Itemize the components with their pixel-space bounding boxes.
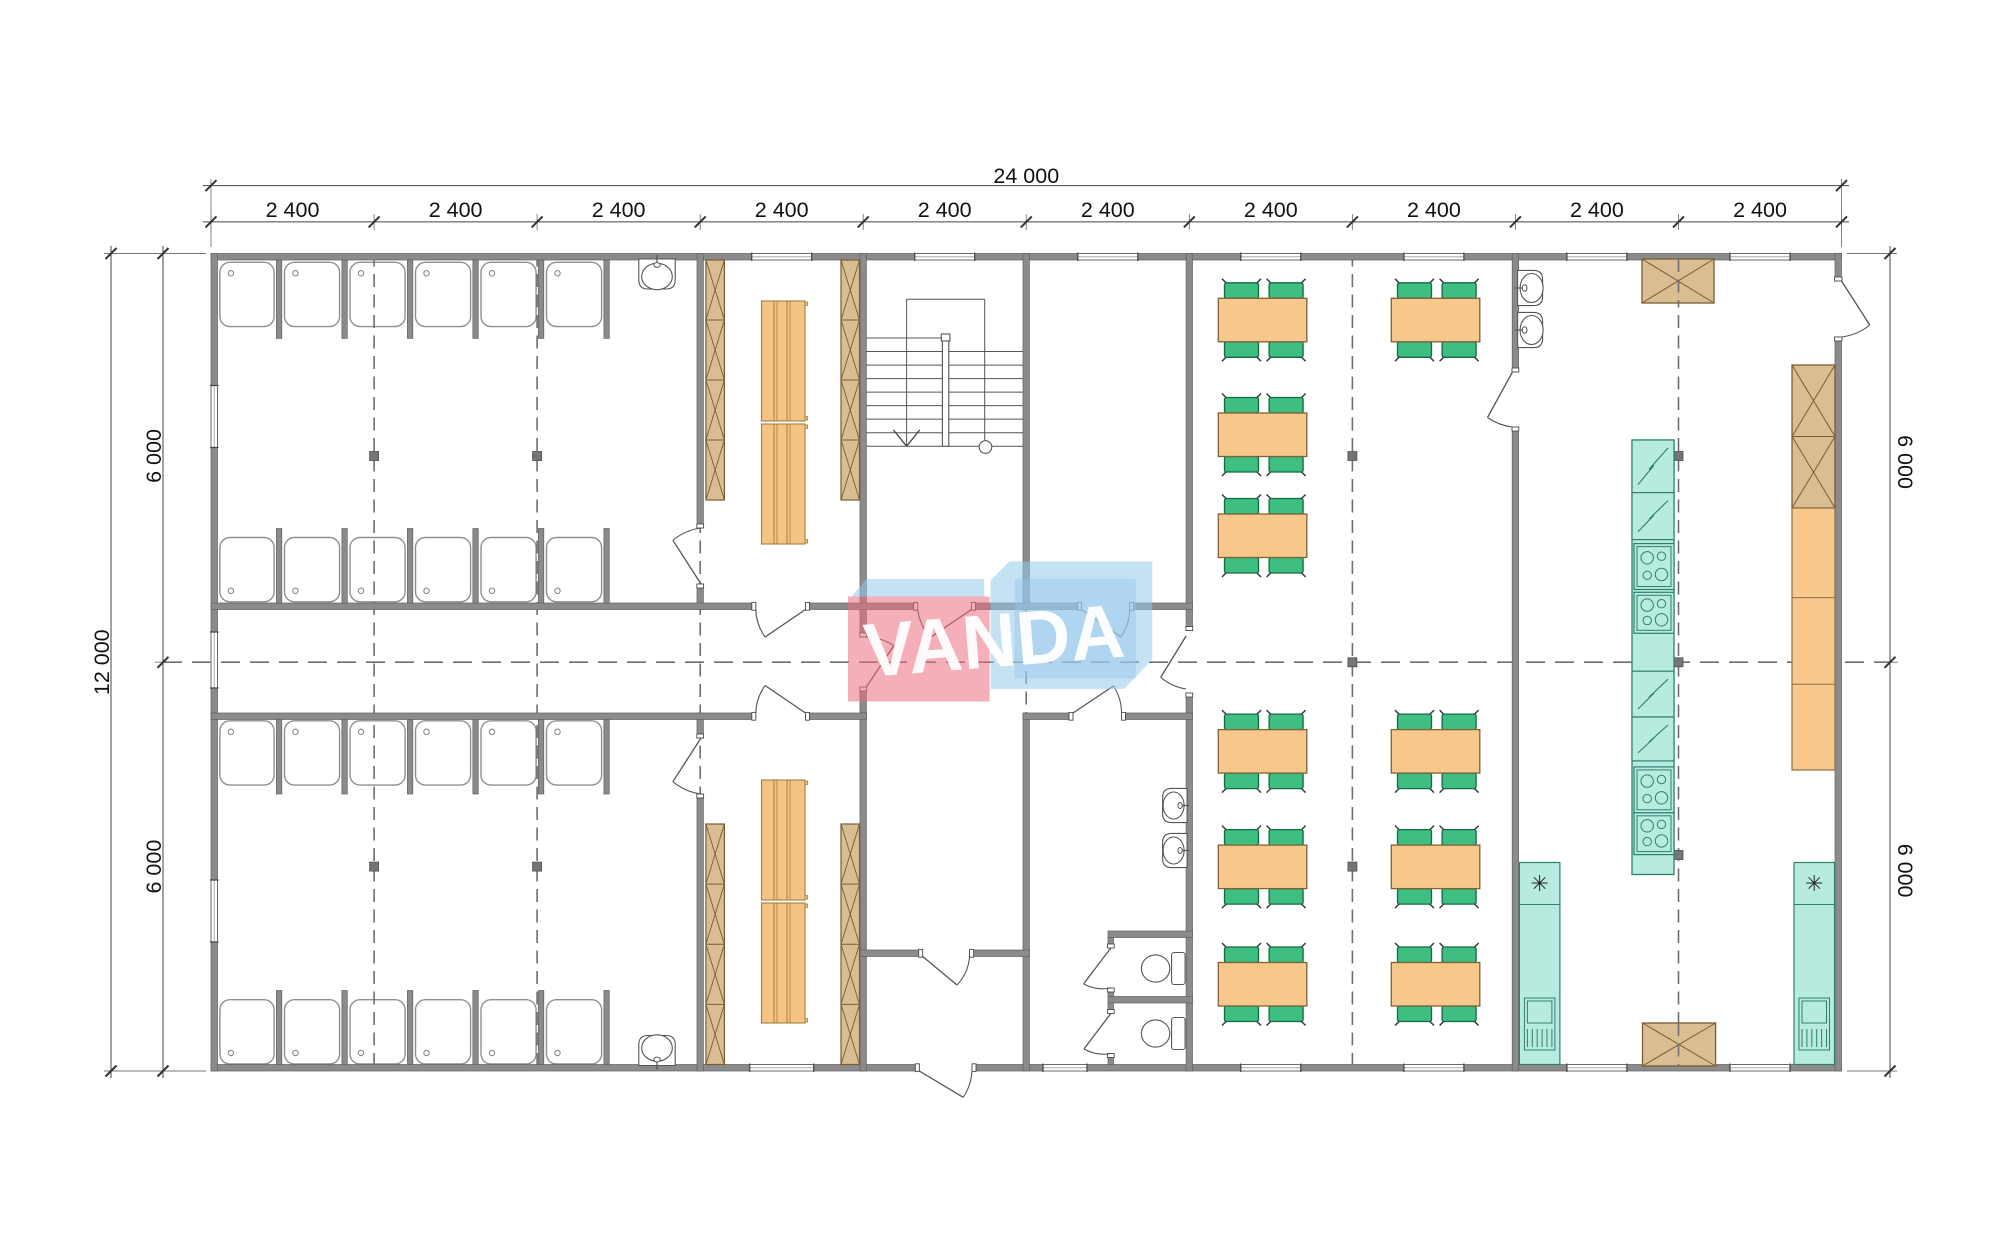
svg-text:2 400: 2 400	[755, 198, 809, 222]
svg-text:2 400: 2 400	[1733, 198, 1787, 222]
svg-text:6 000: 6 000	[142, 840, 166, 894]
svg-text:6 000: 6 000	[142, 429, 166, 483]
svg-text:6 000: 6 000	[1893, 844, 1917, 898]
svg-text:2 400: 2 400	[1407, 198, 1461, 222]
svg-text:2 400: 2 400	[592, 198, 646, 222]
svg-text:2 400: 2 400	[429, 198, 483, 222]
svg-text:2 400: 2 400	[266, 198, 320, 222]
svg-text:2 400: 2 400	[1570, 198, 1624, 222]
svg-text:12 000: 12 000	[90, 629, 114, 695]
svg-text:24 000: 24 000	[993, 164, 1059, 188]
svg-text:2 400: 2 400	[918, 198, 972, 222]
svg-text:6 000: 6 000	[1893, 435, 1917, 489]
svg-text:2 400: 2 400	[1244, 198, 1298, 222]
svg-text:2 400: 2 400	[1081, 198, 1135, 222]
